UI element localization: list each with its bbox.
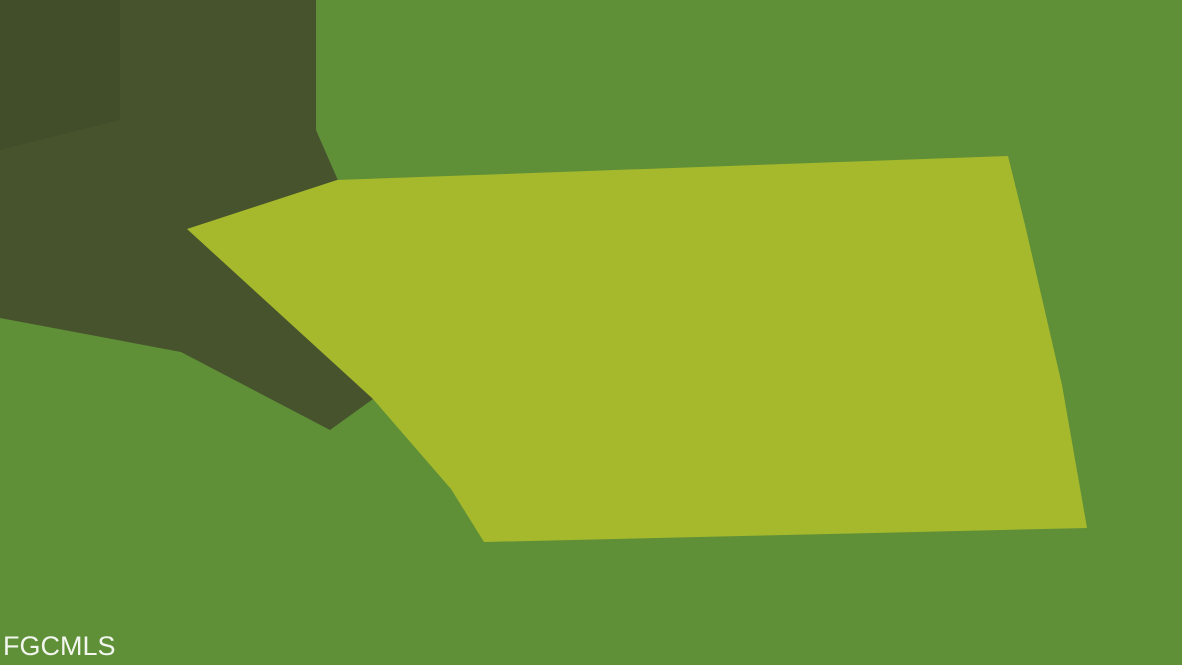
svg-text:FGCMLS: FGCMLS: [3, 631, 116, 661]
